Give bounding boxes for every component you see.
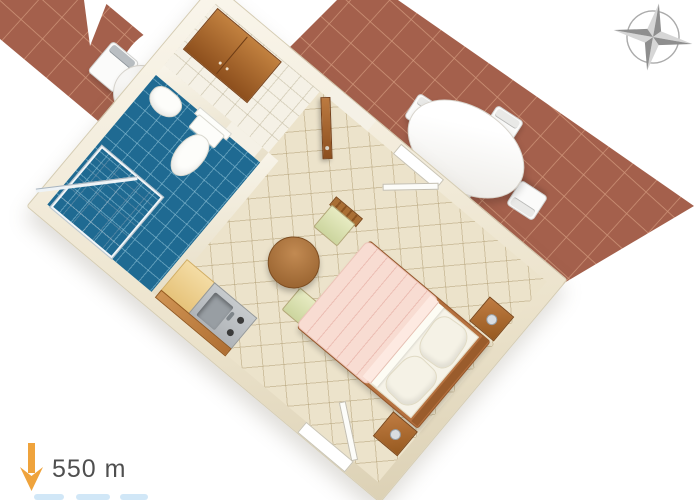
floor-plan-scene: 550 m bbox=[0, 0, 700, 500]
wardrobe-knob bbox=[225, 67, 229, 71]
distance-label: 550 m bbox=[52, 455, 126, 484]
door-handle bbox=[325, 146, 329, 150]
compass-rose-icon bbox=[606, 0, 700, 78]
down-arrow-icon bbox=[14, 441, 50, 493]
cropped-watermark bbox=[34, 494, 64, 500]
nightstand-knob bbox=[484, 312, 499, 327]
cropped-watermark bbox=[76, 494, 110, 500]
shower-glass-door bbox=[36, 176, 138, 192]
cropped-watermark bbox=[120, 494, 148, 500]
entrance-door bbox=[320, 97, 332, 159]
wardrobe-door-seam bbox=[216, 37, 248, 74]
wardrobe-knob bbox=[218, 61, 222, 65]
window-top-leaf bbox=[383, 183, 439, 191]
nightstand-knob bbox=[388, 427, 403, 442]
hob-burner bbox=[236, 315, 246, 325]
hob-burner bbox=[225, 328, 235, 338]
